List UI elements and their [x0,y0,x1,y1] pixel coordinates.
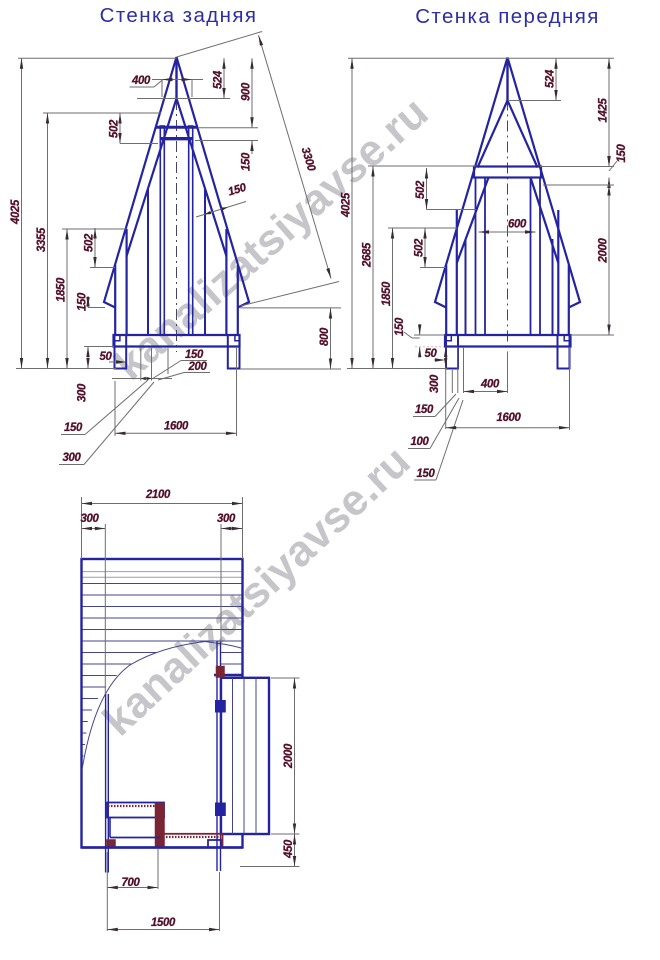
svg-text:150: 150 [616,144,628,163]
svg-text:900: 900 [240,82,252,101]
svg-text:1850: 1850 [55,277,67,302]
svg-text:100: 100 [411,436,430,448]
svg-text:50: 50 [100,351,113,363]
svg-text:400: 400 [131,75,151,87]
svg-text:150: 150 [415,404,434,416]
svg-text:502: 502 [83,233,95,252]
svg-text:2100: 2100 [145,489,171,501]
svg-text:1500: 1500 [151,917,176,929]
svg-text:2685: 2685 [361,242,373,268]
svg-text:150: 150 [394,317,406,336]
svg-text:4025: 4025 [340,192,352,218]
svg-text:150: 150 [240,152,252,171]
svg-text:502: 502 [413,238,425,257]
svg-text:1600: 1600 [497,412,522,424]
svg-text:700: 700 [122,877,141,889]
svg-text:800: 800 [319,327,331,346]
svg-text:2000: 2000 [283,743,295,769]
svg-text:502: 502 [108,119,120,138]
svg-text:2000: 2000 [597,238,609,264]
svg-text:300: 300 [81,513,100,525]
svg-text:150: 150 [64,422,83,434]
svg-text:300: 300 [76,383,88,402]
svg-text:1425: 1425 [597,98,609,123]
svg-text:150: 150 [417,468,436,480]
svg-text:Стенка задняя: Стенка задняя [100,4,258,27]
svg-text:502: 502 [415,180,427,199]
svg-text:150: 150 [185,349,204,361]
svg-text:50: 50 [425,348,438,360]
svg-text:600: 600 [508,219,527,231]
svg-text:450: 450 [283,839,295,859]
svg-text:1600: 1600 [164,421,189,433]
svg-text:300: 300 [63,452,82,464]
svg-text:524: 524 [544,69,556,88]
svg-text:400: 400 [480,379,500,391]
svg-text:300: 300 [429,374,441,393]
svg-text:4025: 4025 [10,199,22,225]
svg-text:Стенка передняя: Стенка передняя [415,5,600,28]
svg-text:200: 200 [188,361,208,373]
svg-text:300: 300 [217,513,236,525]
svg-text:1850: 1850 [381,281,393,306]
svg-text:150: 150 [76,292,88,311]
svg-text:3355: 3355 [36,227,48,252]
svg-text:524: 524 [212,70,224,89]
